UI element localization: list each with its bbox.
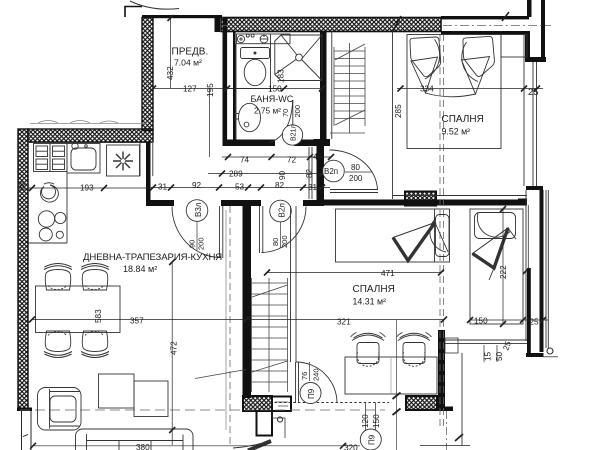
svg-text:ДНЕВНА-ТРАПЕЗАРИЯ-КУХНЯ: ДНЕВНА-ТРАПЕЗАРИЯ-КУХНЯ [83,252,222,263]
svg-text:СПАЛНЯ: СПАЛНЯ [442,114,484,125]
svg-text:200: 200 [197,237,206,250]
svg-text:31: 31 [158,183,168,192]
svg-text:74: 74 [240,156,250,165]
svg-text:В21л: В21л [291,124,298,141]
svg-text:90: 90 [278,170,287,180]
svg-text:471: 471 [381,269,395,278]
svg-text:200: 200 [349,174,363,183]
svg-text:72: 72 [287,156,297,165]
svg-text:127: 127 [183,85,197,94]
svg-text:222: 222 [499,265,508,279]
svg-text:583: 583 [94,309,103,323]
svg-text:289: 289 [229,170,243,179]
svg-text:БАНЯ-WC: БАНЯ-WC [251,94,294,104]
svg-text:В3л: В3л [194,202,203,217]
svg-text:357: 357 [130,317,144,326]
svg-text:18.84 м²: 18.84 м² [123,264,157,274]
svg-text:25: 25 [528,87,539,98]
svg-text:ПРЕДВ.: ПРЕДВ. [172,47,209,58]
svg-text:120: 120 [361,414,370,428]
svg-text:70: 70 [281,109,290,117]
svg-text:90: 90 [188,240,197,248]
svg-text:15: 15 [484,351,493,361]
svg-text:195: 195 [206,83,215,97]
svg-text:53: 53 [235,183,245,192]
svg-text:9.52 м²: 9.52 м² [442,127,471,137]
svg-text:432: 432 [166,66,175,80]
svg-text:2.75 м²: 2.75 м² [254,106,281,116]
svg-text:82: 82 [305,168,314,178]
svg-text:80: 80 [351,163,360,172]
svg-text:50: 50 [495,351,504,361]
svg-text:25: 25 [530,318,540,327]
svg-text:82: 82 [275,181,285,190]
svg-text:321: 321 [337,318,351,327]
svg-text:76: 76 [300,372,309,380]
svg-text:46: 46 [313,153,323,162]
svg-text:31: 31 [308,183,318,192]
svg-text:150: 150 [268,85,282,94]
svg-text:СПАЛНЯ: СПАЛНЯ [353,284,395,295]
svg-text:7.04 м²: 7.04 м² [174,58,202,68]
svg-text:285: 285 [394,104,403,118]
svg-text:14.31 м²: 14.31 м² [353,297,387,307]
svg-text:80: 80 [271,238,280,246]
svg-text:320: 320 [344,444,358,450]
svg-text:80: 80 [18,181,27,191]
svg-text:150: 150 [474,317,488,326]
svg-text:334: 334 [420,85,434,94]
svg-text:П9: П9 [368,434,377,445]
svg-text:240: 240 [312,368,321,381]
svg-text:183: 183 [277,69,286,83]
svg-text:П9: П9 [307,388,316,399]
svg-text:380: 380 [136,443,150,450]
svg-text:200: 200 [293,105,302,118]
svg-text:92: 92 [192,181,202,190]
svg-text:200: 200 [280,235,289,248]
svg-text:В2л: В2л [278,203,287,218]
svg-text:В2п: В2п [324,167,338,176]
svg-text:150: 150 [372,414,381,428]
svg-text:193: 193 [80,184,94,193]
svg-text:472: 472 [170,341,179,355]
